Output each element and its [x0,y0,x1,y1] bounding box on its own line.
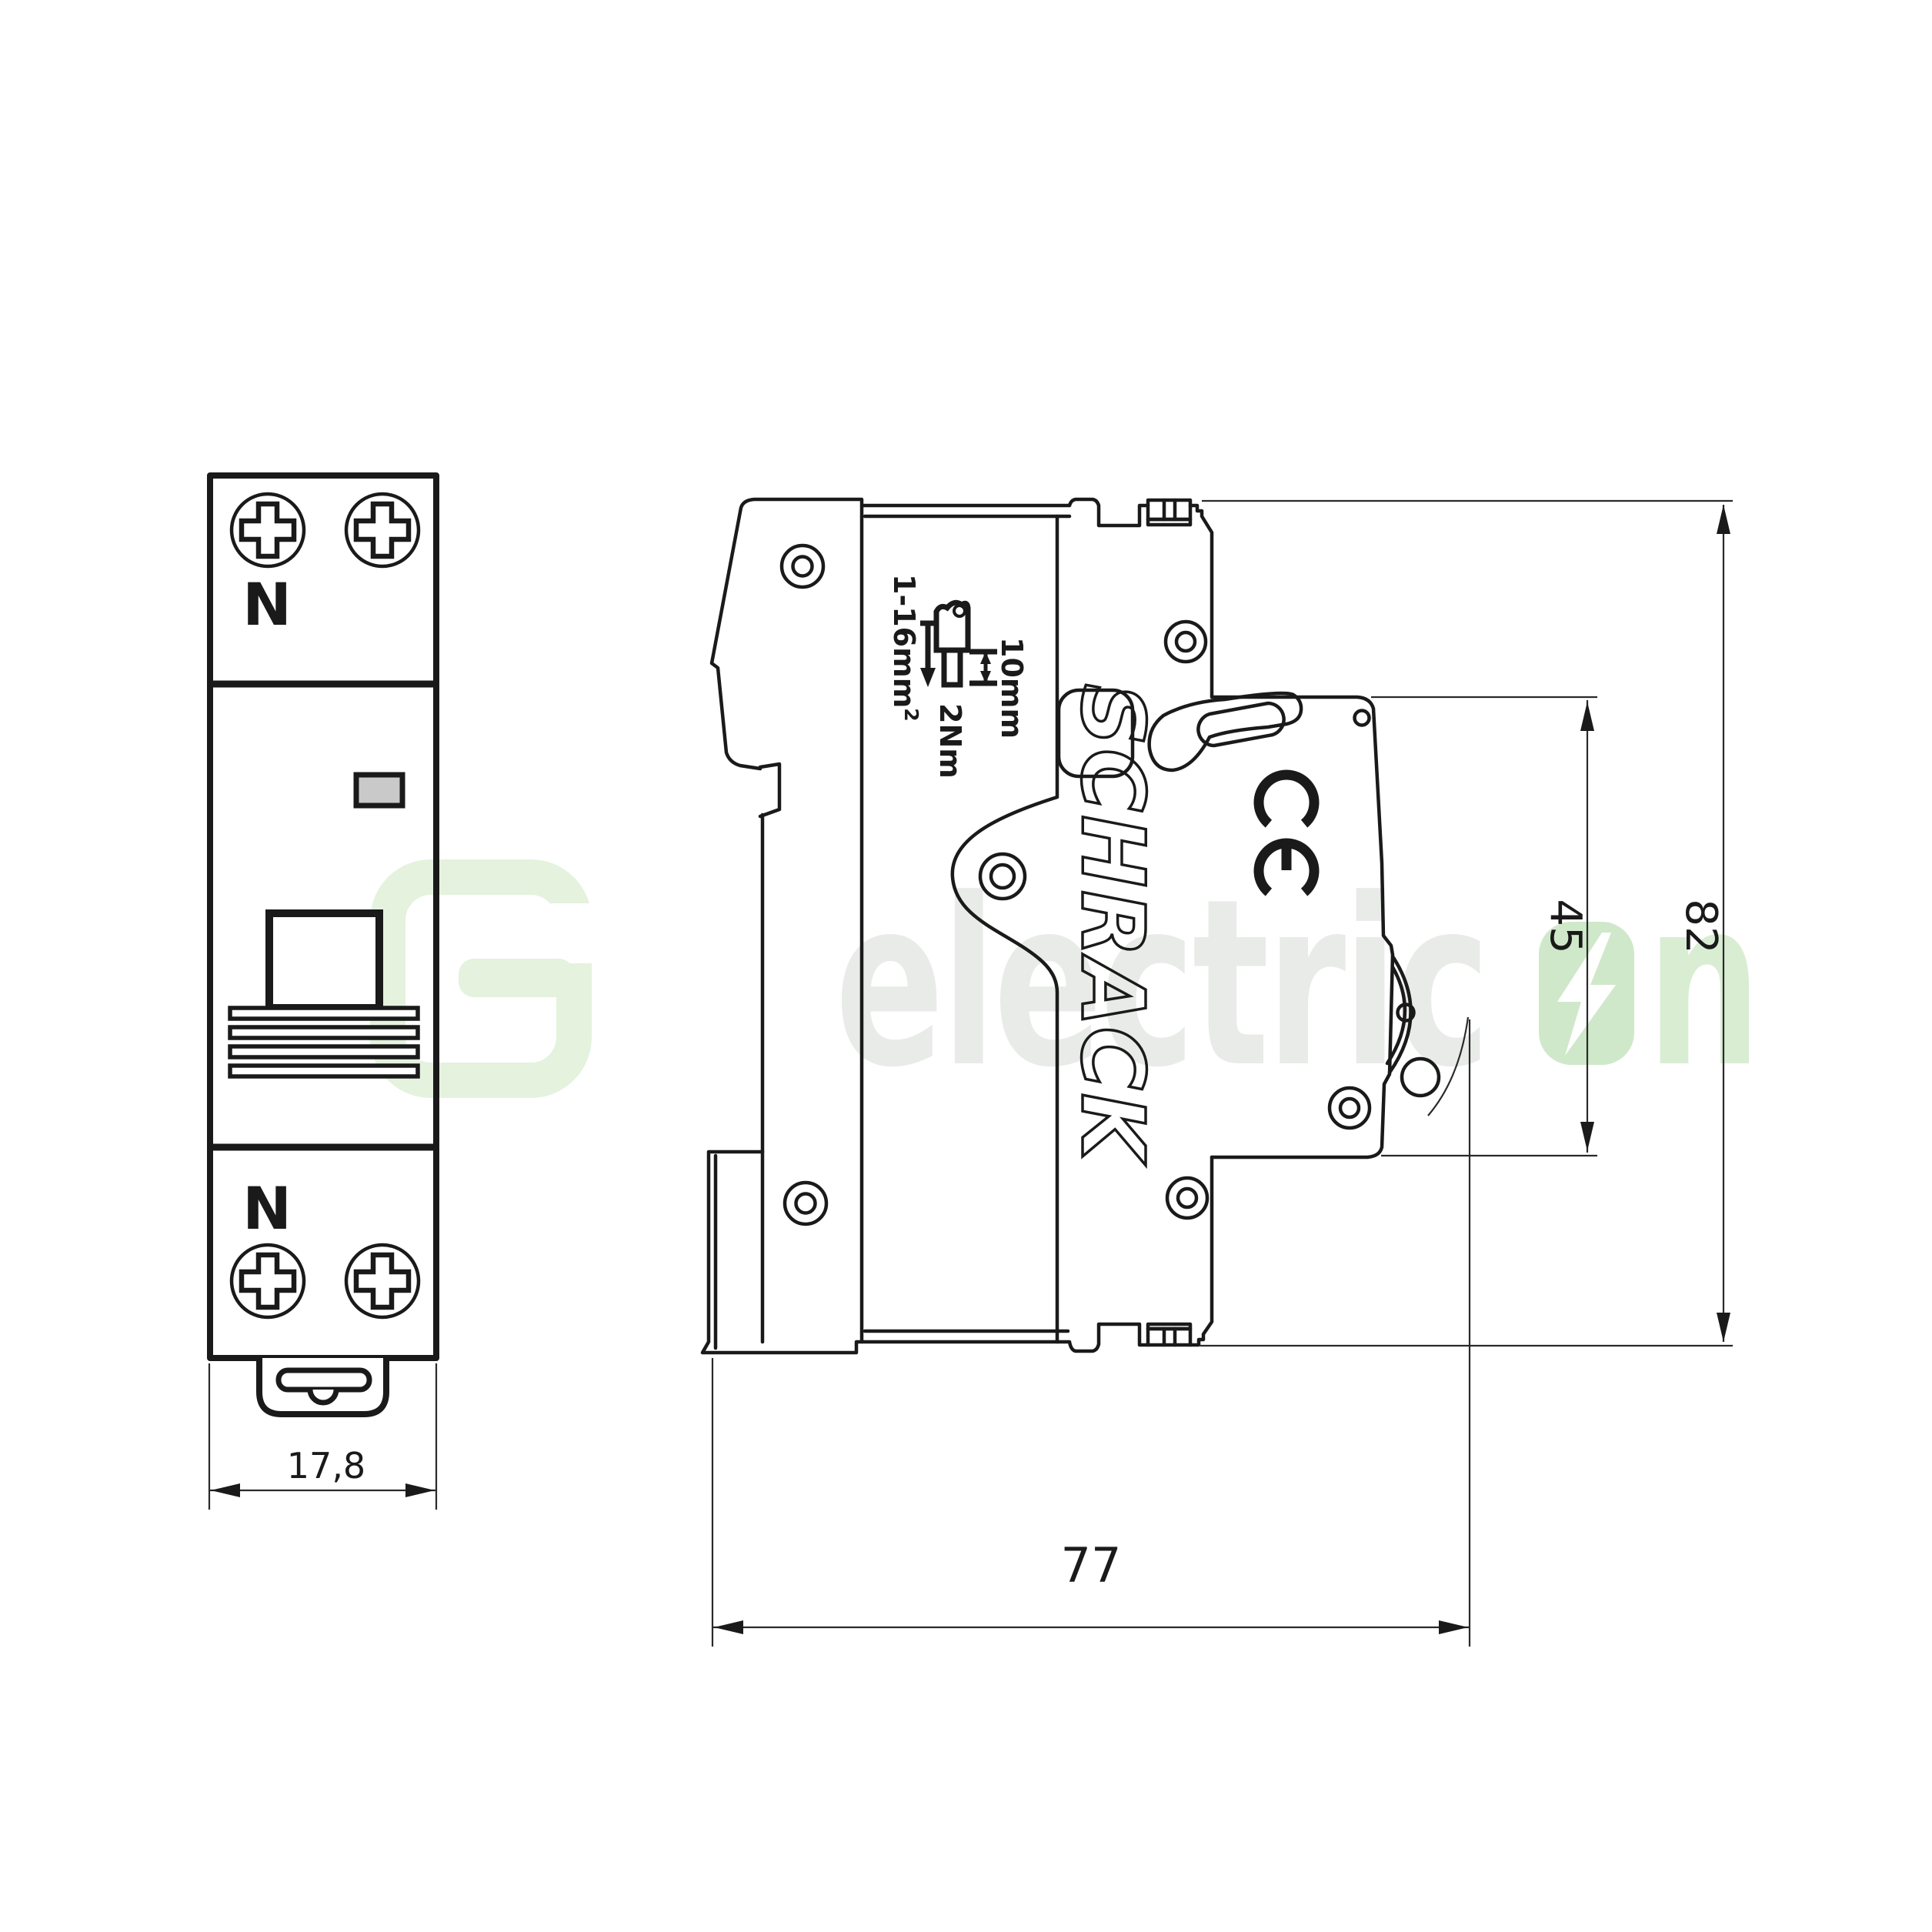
neutral-label-bottom: N [242,1174,292,1243]
watermark-text-green: n [1647,850,1762,1119]
electricon-logo-icon [388,877,612,1080]
din-clip [259,1358,386,1414]
drawing-canvas: electric n N N [0,0,1932,1932]
front-height-dim-label: 45 [1540,899,1590,953]
housing-screw-icon [785,1183,826,1224]
housing-screw-icon [1167,1178,1207,1218]
toggle-handle [269,913,379,1008]
total-height-dim-label: 82 [1676,899,1726,953]
housing-screw-icon [782,546,823,587]
insert-arrow-icon [920,623,936,687]
wire-range-label: 1-16mm2 [887,574,923,722]
torque-label: 2Nm [933,703,967,779]
brand-logo-text: SCHRACK [1062,683,1162,1165]
neutral-label-top: N [242,570,292,639]
phillips-screw-icon [232,1245,304,1317]
phillips-screw-icon [232,494,304,566]
phillips-screw-icon [346,1245,419,1317]
wire-terminal-pictogram: 1-16mm2 10mm 2Nm [887,574,1029,779]
depth-dim-label: 77 [1061,1537,1122,1593]
bottom-latch-block [1148,1324,1190,1345]
wire-ferrule-icon [936,602,968,685]
handle-slot [1150,693,1301,770]
indicator-window [356,775,402,806]
top-latch-block [1148,500,1190,525]
technical-drawing-page: electric n N N [0,0,1932,1932]
strip-length-label: 10mm [995,637,1029,739]
strip-length-bracket [969,652,997,683]
din-claw-tooth [760,764,779,816]
panel-corner-hole [1355,711,1370,726]
width-dim-label: 17,8 [287,1445,365,1487]
phillips-screw-icon [346,494,419,566]
housing-screw-icon [1166,622,1206,662]
side-outline-bottom [702,1152,1212,1353]
